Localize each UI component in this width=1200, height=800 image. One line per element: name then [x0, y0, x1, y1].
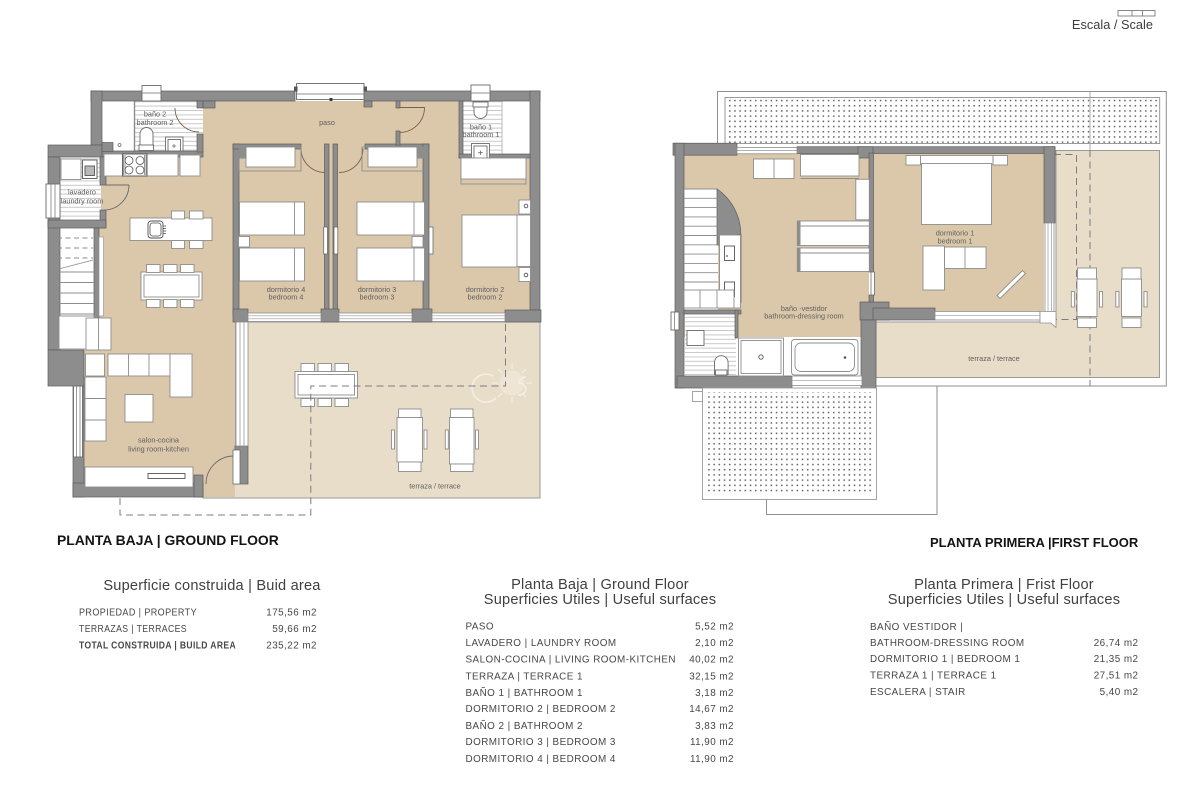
svg-text:LAVADERO | LAUNDRY ROOM: LAVADERO | LAUNDRY ROOM — [466, 638, 617, 649]
svg-text:TERRAZAS | TERRACES: TERRAZAS | TERRACES — [79, 624, 187, 635]
svg-text:Superficies Utiles | Useful: Superficies Utiles | Useful surfaces — [888, 592, 1120, 608]
svg-text:21,35 m2: 21,35 m2 — [1094, 654, 1139, 665]
svg-text:5,52 m2: 5,52 m2 — [695, 622, 734, 633]
svg-text:TOTAL CONSTRUIDA | BUILD ARE: TOTAL CONSTRUIDA | BUILD AREA — [79, 641, 236, 652]
svg-text:DORMITORIO 3 | BEDROOM 3: DORMITORIO 3 | BEDROOM 3 — [466, 737, 616, 748]
svg-text:3,18 m2: 3,18 m2 — [695, 688, 734, 699]
svg-text:BAÑO VESTIDOR |: BAÑO VESTIDOR | — [870, 622, 963, 633]
svg-text:terraza / terrace: terraza / terrace — [968, 354, 1020, 363]
svg-text:bedroom 2: bedroom 2 — [468, 293, 503, 302]
svg-text:PASO: PASO — [466, 622, 495, 633]
svg-text:27,51 m2: 27,51 m2 — [1094, 671, 1139, 682]
svg-text:2,10 m2: 2,10 m2 — [695, 638, 734, 649]
svg-text:laundry room: laundry room — [61, 197, 104, 206]
svg-text:bedroom 1: bedroom 1 — [938, 237, 973, 246]
svg-text:DORMITORIO 4 | BEDROOM 4: DORMITORIO 4 | BEDROOM 4 — [466, 754, 616, 765]
svg-text:32,15 m2: 32,15 m2 — [689, 672, 734, 683]
svg-text:26,74 m2: 26,74 m2 — [1094, 638, 1139, 649]
svg-text:living room-kitchen: living room-kitchen — [128, 445, 189, 454]
svg-text:3,83 m2: 3,83 m2 — [695, 721, 734, 732]
svg-text:BAÑO 2 | BATHROOM 2: BAÑO 2 | BATHROOM 2 — [466, 721, 583, 732]
svg-text:ESCALERA | STAIR: ESCALERA | STAIR — [870, 687, 966, 698]
svg-text:PROPIEDAD | PROPERTY: PROPIEDAD | PROPERTY — [79, 608, 197, 619]
svg-text:Superficies Utiles | Useful: Superficies Utiles | Useful surfaces — [484, 592, 716, 608]
svg-text:bathroom-dressing room: bathroom-dressing room — [764, 312, 844, 321]
svg-text:lavadero: lavadero — [68, 188, 96, 197]
svg-text:TERRAZA | TERRACE 1: TERRAZA | TERRACE 1 — [466, 672, 583, 683]
svg-text:11,90 m2: 11,90 m2 — [690, 754, 734, 765]
svg-text:bedroom 4: bedroom 4 — [269, 293, 304, 302]
svg-text:BATHROOM-DRESSING ROOM: BATHROOM-DRESSING ROOM — [870, 638, 1025, 649]
svg-text:Planta Primera | Frist Floor: Planta Primera | Frist Floor — [914, 577, 1094, 593]
svg-text:DORMITORIO 1 | BEDROOM 1: DORMITORIO 1 | BEDROOM 1 — [870, 654, 1020, 665]
svg-text:PLANTA PRIMERA |FIRST FLOOR: PLANTA PRIMERA |FIRST FLOOR — [930, 535, 1139, 550]
svg-text:DORMITORIO 2 | BEDROOM 2: DORMITORIO 2 | BEDROOM 2 — [466, 704, 616, 715]
svg-text:bedroom 3: bedroom 3 — [360, 293, 395, 302]
svg-text:SALON-COCINA | LIVING ROOM-K: SALON-COCINA | LIVING ROOM-KITCHEN — [466, 655, 676, 666]
svg-text:Superficie construida | Buid: Superficie construida | Buid area — [103, 578, 321, 594]
svg-text:BAÑO 1 | BATHROOM 1: BAÑO 1 | BATHROOM 1 — [466, 688, 583, 699]
svg-text:Planta Baja | Ground Floor: Planta Baja | Ground Floor — [511, 577, 689, 593]
svg-text:175,56 m2: 175,56 m2 — [266, 608, 317, 619]
svg-text:11,90 m2: 11,90 m2 — [690, 737, 734, 748]
svg-text:PLANTA BAJA | GROUND FLOOR: PLANTA BAJA | GROUND FLOOR — [57, 532, 279, 548]
svg-text:14,67 m2: 14,67 m2 — [689, 704, 734, 715]
svg-text:bathroom 1: bathroom 1 — [463, 130, 500, 139]
svg-text:paso: paso — [319, 118, 335, 127]
svg-text:5,40 m2: 5,40 m2 — [1100, 687, 1139, 698]
svg-text:235,22 m2: 235,22 m2 — [266, 641, 317, 652]
svg-text:salon-cocina: salon-cocina — [138, 436, 180, 445]
svg-text:TERRAZA 1 | TERRACE 1: TERRAZA 1 | TERRACE 1 — [870, 671, 997, 682]
svg-text:59,66 m2: 59,66 m2 — [272, 624, 317, 635]
svg-text:bathroom 2: bathroom 2 — [137, 118, 174, 127]
svg-text:40,02 m2: 40,02 m2 — [689, 655, 734, 666]
svg-text:Escala / Scale: Escala / Scale — [1072, 17, 1153, 32]
svg-text:terraza / terrace: terraza / terrace — [409, 482, 461, 491]
